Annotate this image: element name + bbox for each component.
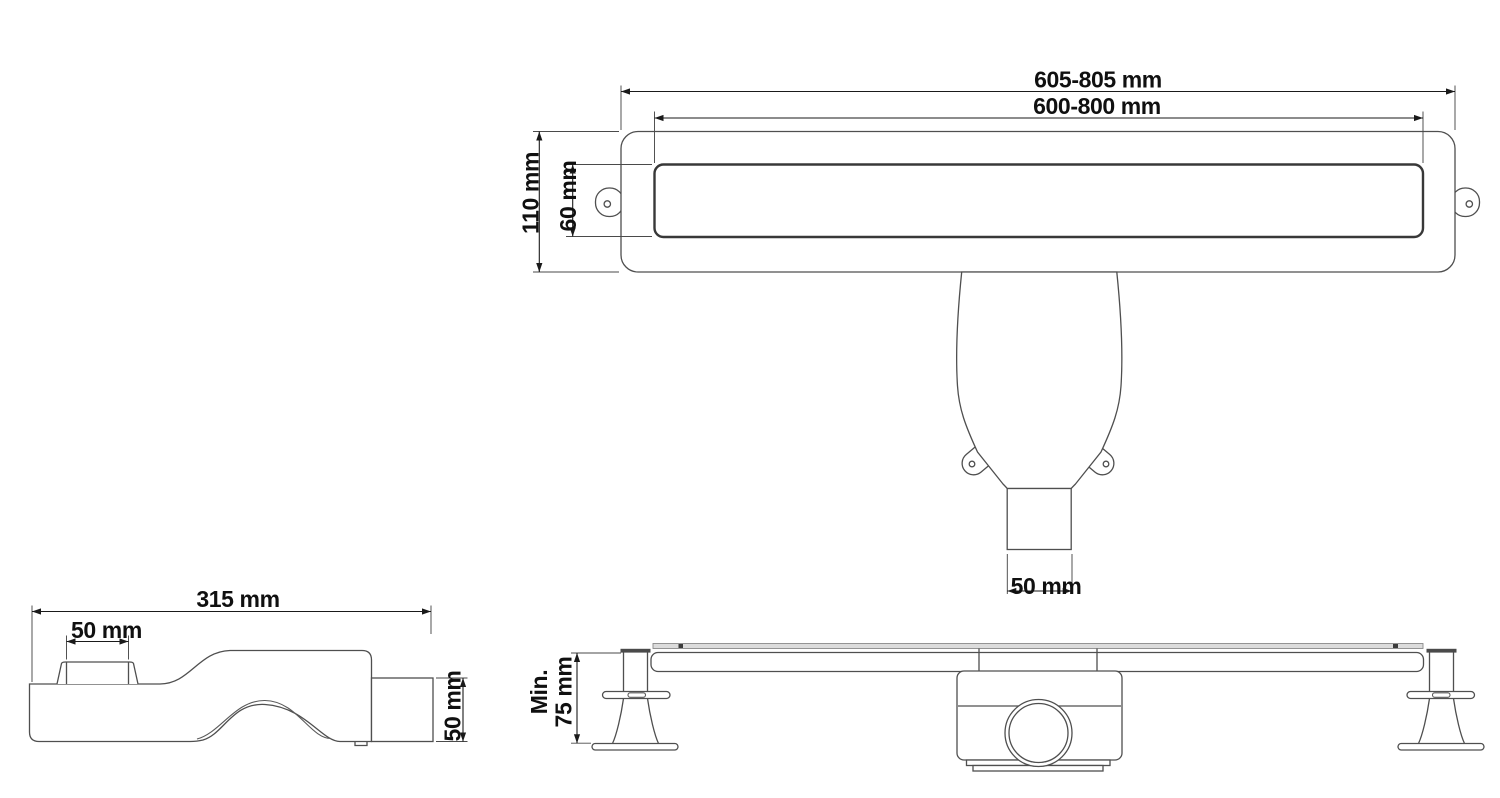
dim-label-grate-width: 60 mm [555, 161, 581, 232]
dim-label-overall-length: 605-805 mm [1034, 67, 1162, 93]
top-flange-strip [653, 644, 1423, 649]
dim-label-inlet-width: 50 mm [71, 617, 142, 643]
foot-plate-left [592, 744, 678, 751]
technical-drawing-canvas: 605-805 mm 600-800 mm 110 mm 60 mm [0, 0, 1500, 798]
dim-label-grate-length: 600-800 mm [1033, 93, 1161, 119]
foot-cap-left [621, 649, 651, 653]
mounting-tab-right [1452, 188, 1480, 217]
sump-outlet-circle-outer [1005, 700, 1072, 767]
channel-body-outline [651, 653, 1424, 672]
flange-tick-left [679, 644, 684, 648]
dimension-inlet-width: 50 mm [67, 617, 142, 660]
top-view: 605-805 mm 600-800 mm 110 mm 60 mm [518, 67, 1480, 600]
foot-plate-right [1398, 744, 1484, 751]
trap-body-outline [957, 272, 1122, 489]
dimension-outlet-height: 50 mm [436, 671, 468, 742]
dim-label-outlet-height: 50 mm [440, 671, 466, 742]
drain-dimension-drawing: 605-805 mm 600-800 mm 110 mm 60 mm [0, 0, 1500, 798]
dimension-outlet-width: 50 mm [1007, 554, 1081, 599]
dim-label-body-width: 110 mm [518, 152, 544, 234]
channel-side-view: Min. 75 mm [526, 644, 1484, 772]
dim-label-min-height-prefix: Min. [526, 670, 552, 714]
dim-label-outlet-width: 50 mm [1011, 573, 1082, 599]
outlet-pipe-side-view [372, 678, 434, 742]
grate-outline [655, 165, 1424, 238]
dim-label-min-height-value: 75 mm [551, 657, 577, 728]
inlet-stub-outline [57, 662, 138, 684]
flange-tick-right [1393, 644, 1398, 648]
trap-side-view: 315 mm 50 mm 50 mm [30, 586, 468, 746]
outlet-pipe-top-view [1007, 489, 1071, 550]
foot-cap-right [1427, 649, 1457, 653]
dim-label-trap-length: 315 mm [196, 586, 279, 612]
